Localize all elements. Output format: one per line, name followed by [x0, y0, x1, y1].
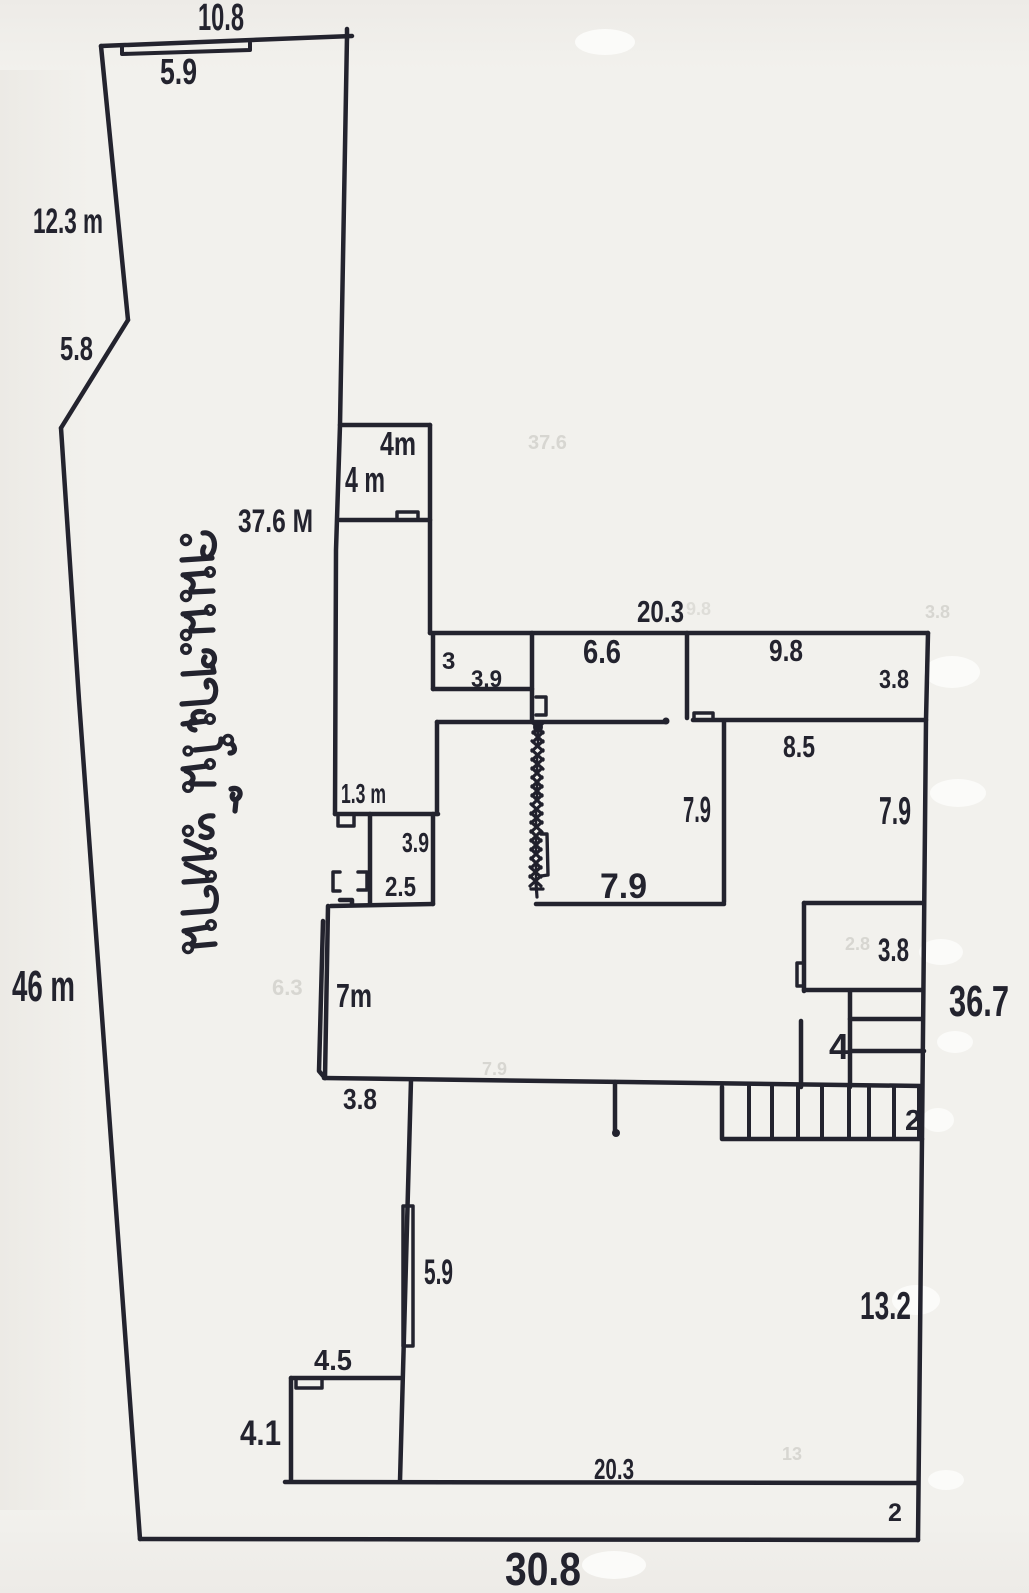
svg-text:4.1: 4.1 [240, 1414, 281, 1453]
svg-text:7.9: 7.9 [683, 789, 711, 830]
svg-text:8.5: 8.5 [783, 729, 815, 764]
svg-text:7.9: 7.9 [879, 790, 911, 833]
svg-text:6.3: 6.3 [272, 975, 303, 1000]
svg-text:13: 13 [782, 1444, 802, 1464]
svg-text:9.8: 9.8 [769, 633, 803, 668]
svg-text:37.6: 37.6 [528, 432, 567, 454]
svg-text:1.3 m: 1.3 m [341, 778, 386, 809]
svg-text:3.8: 3.8 [879, 664, 909, 694]
svg-text:7m: 7m [336, 977, 372, 1014]
svg-text:20.3: 20.3 [594, 1454, 634, 1486]
svg-text:3.8: 3.8 [925, 602, 950, 622]
svg-text:13.2: 13.2 [860, 1285, 911, 1328]
svg-text:3.9: 3.9 [402, 827, 429, 858]
svg-text:2: 2 [905, 1105, 921, 1137]
svg-text:7.9: 7.9 [600, 867, 647, 906]
svg-text:3.8: 3.8 [878, 932, 909, 968]
svg-text:10.8: 10.8 [198, 0, 244, 39]
svg-text:4 m: 4 m [345, 459, 385, 500]
svg-text:36.7: 36.7 [949, 977, 1009, 1026]
svg-text:4.5: 4.5 [314, 1345, 352, 1377]
svg-text:9.8: 9.8 [686, 599, 711, 619]
svg-text:5.8: 5.8 [60, 330, 93, 367]
svg-text:3.8: 3.8 [343, 1084, 377, 1116]
svg-text:12.3 m: 12.3 m [33, 202, 103, 241]
svg-text:5.9: 5.9 [160, 51, 197, 92]
svg-text:3: 3 [442, 648, 455, 675]
svg-text:4: 4 [829, 1026, 849, 1067]
svg-text:37.6 M: 37.6 M [238, 503, 313, 539]
svg-text:2.8: 2.8 [845, 934, 870, 954]
svg-text:5.9: 5.9 [424, 1253, 453, 1292]
svg-text:6.6: 6.6 [583, 633, 621, 670]
svg-text:20.3: 20.3 [637, 594, 684, 629]
svg-text:2.5: 2.5 [385, 871, 416, 902]
svg-text:2: 2 [888, 1499, 902, 1527]
svg-text:3.9: 3.9 [471, 666, 502, 693]
svg-text:30.8: 30.8 [505, 1543, 581, 1593]
svg-text:7.9: 7.9 [482, 1059, 507, 1079]
svg-text:46 m: 46 m [12, 962, 75, 1011]
svg-text:4m: 4m [380, 425, 416, 462]
